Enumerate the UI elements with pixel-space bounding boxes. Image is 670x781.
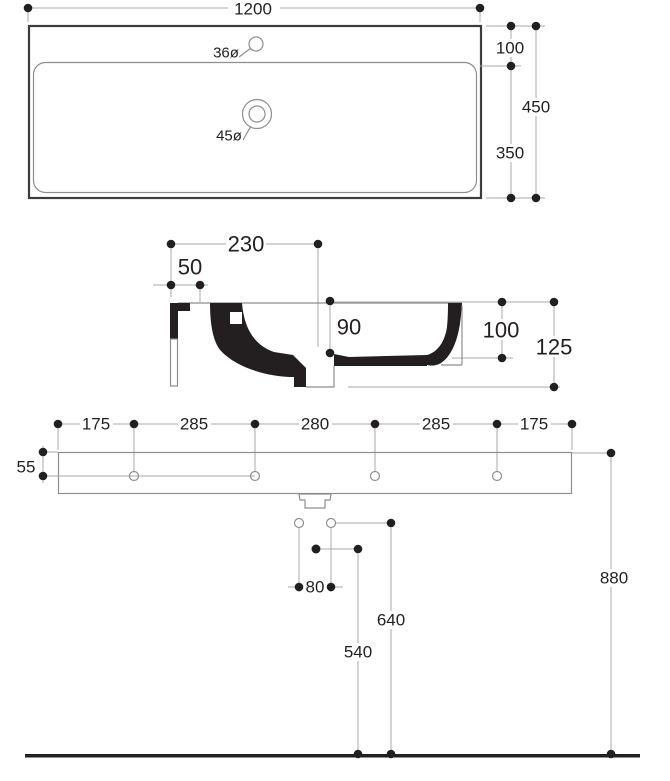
front-view: 175 285 280 285 175 55 — [17, 415, 640, 759]
supply-hole-left — [295, 519, 304, 528]
faucet-hole-dim-label: 36ø — [213, 45, 239, 62]
front-hole-spacing-dim-label: 80 — [306, 578, 325, 597]
mounting-hole-4 — [493, 472, 502, 481]
section-drain-center-dim-label: 230 — [228, 232, 265, 257]
front-slab-thickness-dim-label: 55 — [17, 458, 36, 477]
section-edge-height-dim-label: 100 — [483, 318, 520, 343]
plan-basin-inner-bowl — [34, 63, 477, 193]
plan-basin-outline — [29, 26, 481, 198]
technical-drawing-page: 1200 36ø 45ø 100 350 450 230 — [0, 0, 670, 781]
faucet-hole — [249, 37, 263, 51]
front-spacing-dim-2: 285 — [180, 415, 208, 434]
front-spacing-dim-1: 175 — [82, 415, 110, 434]
plan-depth-dim-label: 450 — [522, 98, 550, 117]
drain-hole-dim-label: 45ø — [216, 128, 242, 145]
front-spacing-dim-3: 280 — [301, 415, 329, 434]
plan-deck-dim-label: 100 — [496, 39, 524, 58]
drain-hole-inner — [249, 106, 265, 122]
section-overall-height-dim-label: 125 — [536, 335, 573, 360]
front-supply-height-dim-label: 640 — [377, 611, 405, 630]
supply-hole-right — [327, 519, 336, 528]
front-drain-height-dim-label: 540 — [344, 643, 372, 662]
section-view: 230 50 90 — [153, 232, 573, 392]
floor-line — [25, 754, 640, 758]
plan-view: 1200 36ø 45ø 100 350 450 — [24, 0, 552, 202]
plan-width-dim-label: 1200 — [234, 0, 272, 19]
section-channel-dim-label: 50 — [178, 255, 202, 280]
section-bowl-depth-dim-label: 90 — [337, 315, 361, 340]
front-slab-outline — [59, 453, 572, 494]
drain-center-mark — [312, 545, 321, 554]
mounting-hole-3 — [371, 472, 380, 481]
washbasin-drawing: 1200 36ø 45ø 100 350 450 230 — [0, 0, 670, 781]
front-spacing-dim-4: 285 — [422, 415, 450, 434]
plan-basin-dim-label: 350 — [496, 144, 524, 163]
drain-hole-outer — [243, 100, 272, 129]
drain-trap-outline — [299, 494, 331, 508]
front-spacing-dim-5: 175 — [520, 415, 548, 434]
front-rim-height-dim-label: 880 — [600, 569, 628, 588]
